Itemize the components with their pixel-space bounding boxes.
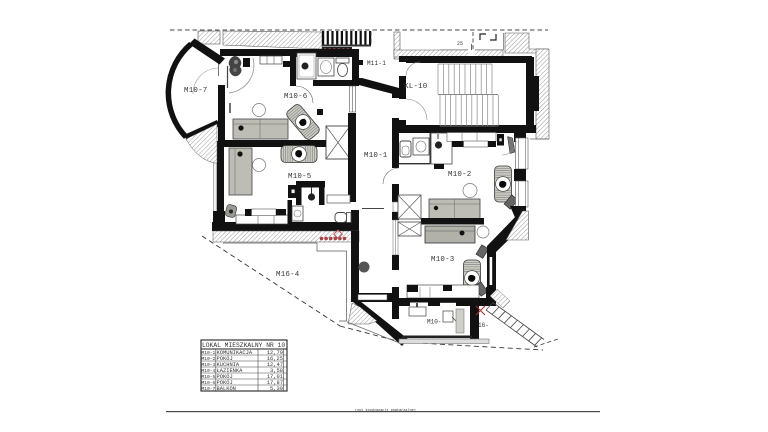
svg-text:M11-1: M11-1: [367, 60, 386, 67]
svg-text:M10-: M10-: [427, 319, 441, 326]
svg-text:M10-7: M10-7: [184, 87, 208, 95]
svg-text:M10-2: M10-2: [202, 356, 216, 362]
svg-text:16-: 16-: [478, 322, 489, 329]
svg-text:M16-4: M16-4: [276, 271, 300, 279]
svg-text:M10-1: M10-1: [364, 152, 388, 160]
svg-text:rzut kondygnacji powtarzalnej: rzut kondygnacji powtarzalnej: [355, 408, 416, 413]
svg-text:M10-1: M10-1: [202, 350, 216, 356]
svg-text:POKÓJ: POKÓJ: [217, 373, 233, 380]
svg-text:M10-4: M10-4: [202, 368, 216, 374]
svg-text:5,39: 5,39: [270, 386, 283, 392]
svg-text:M10-7: M10-7: [202, 386, 216, 392]
svg-text:M10-2: M10-2: [448, 171, 472, 179]
svg-text:KL-10: KL-10: [404, 83, 428, 91]
svg-text:M10-3: M10-3: [202, 362, 216, 368]
svg-text:M10-6: M10-6: [202, 380, 216, 386]
svg-text:M10-6: M10-6: [284, 93, 308, 101]
svg-text:LOKAL MIESZKALNY NR 10: LOKAL MIESZKALNY NR 10: [202, 342, 285, 349]
svg-text:POKÓJ: POKÓJ: [217, 355, 233, 362]
svg-text:25: 25: [457, 41, 463, 47]
svg-text:POKÓJ: POKÓJ: [217, 379, 233, 386]
svg-text:M10-5: M10-5: [288, 173, 312, 181]
svg-text:M10-5: M10-5: [202, 374, 216, 380]
svg-text:M10-3: M10-3: [431, 256, 455, 264]
svg-text:BALKON: BALKON: [217, 386, 236, 392]
